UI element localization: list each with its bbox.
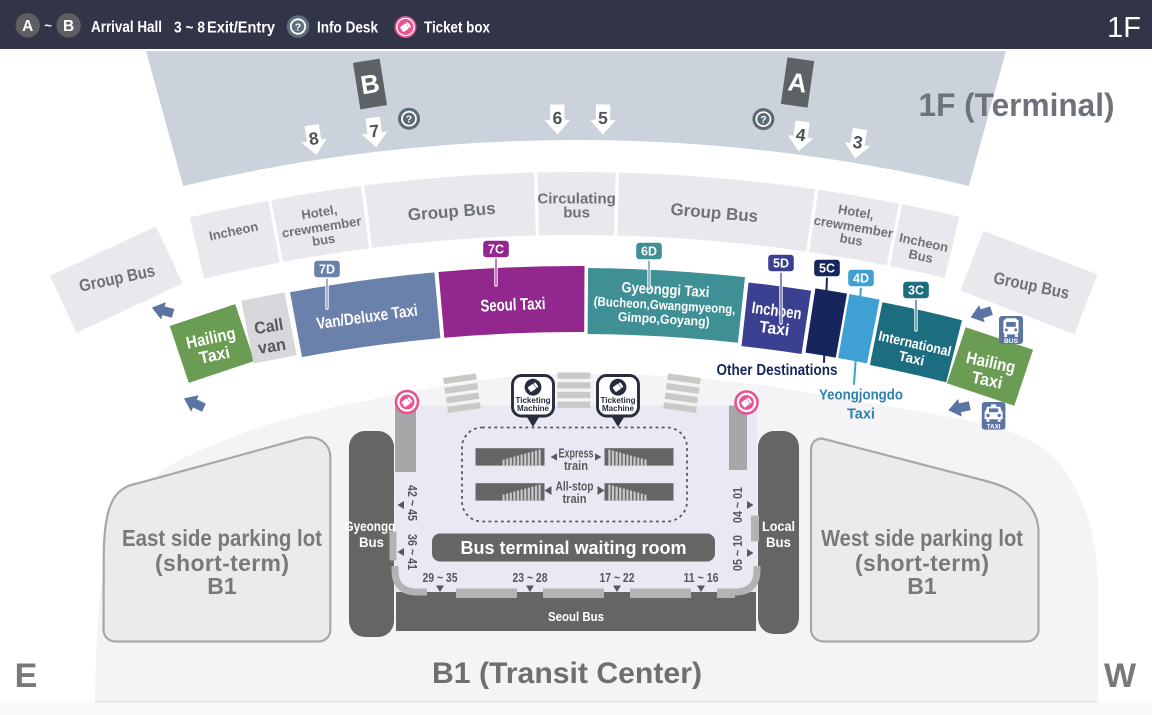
- svg-text:BUS: BUS: [1004, 338, 1019, 345]
- svg-text:11 ~ 16: 11 ~ 16: [684, 570, 719, 585]
- svg-text:29 ~ 35: 29 ~ 35: [423, 570, 458, 585]
- svg-text:train: train: [563, 492, 587, 506]
- svg-text:Yeongjongdo: Yeongjongdo: [819, 387, 903, 404]
- svg-text:5C: 5C: [819, 262, 835, 276]
- svg-text:East side parking lot: East side parking lot: [122, 525, 322, 551]
- svg-text:B: B: [63, 18, 74, 35]
- svg-text:5: 5: [598, 108, 608, 128]
- svg-text:?: ?: [295, 22, 301, 34]
- svg-text:4D: 4D: [853, 272, 869, 286]
- svg-text:Ticket box: Ticket box: [424, 20, 490, 37]
- svg-text:TAXI: TAXI: [987, 423, 1001, 430]
- svg-text:B1 (Transit Center): B1 (Transit Center): [432, 657, 702, 690]
- svg-text:5D: 5D: [773, 257, 789, 271]
- svg-text:Machine: Machine: [602, 404, 635, 413]
- svg-text:7C: 7C: [488, 243, 504, 257]
- svg-text:05 ~ 10: 05 ~ 10: [730, 535, 745, 571]
- svg-text:1F (Terminal): 1F (Terminal): [919, 87, 1115, 123]
- svg-text:42 ~ 45: 42 ~ 45: [405, 485, 420, 521]
- svg-text:~: ~: [44, 18, 52, 33]
- svg-text:A: A: [22, 18, 33, 35]
- svg-text:B1: B1: [907, 573, 937, 599]
- svg-text:6: 6: [552, 108, 562, 128]
- svg-text:Info Desk: Info Desk: [317, 20, 378, 37]
- svg-text:Seoul Bus: Seoul Bus: [548, 609, 604, 624]
- svg-text:?: ?: [760, 114, 766, 126]
- svg-text:Taxi: Taxi: [847, 407, 875, 423]
- svg-text:E: E: [15, 657, 38, 695]
- svg-text:Machine: Machine: [517, 404, 550, 413]
- svg-text:04 ~ 01: 04 ~ 01: [730, 487, 745, 523]
- svg-text:Bus: Bus: [766, 534, 791, 550]
- svg-text:Seoul Taxi: Seoul Taxi: [480, 294, 546, 316]
- svg-text:7D: 7D: [319, 263, 335, 277]
- svg-text:Local: Local: [762, 518, 795, 534]
- svg-text:B1: B1: [207, 573, 237, 599]
- svg-text:Bus terminal waiting room: Bus terminal waiting room: [460, 538, 686, 558]
- svg-text:W: W: [1104, 657, 1137, 695]
- svg-text:6D: 6D: [641, 245, 657, 259]
- svg-text:1F: 1F: [1107, 12, 1141, 44]
- svg-text:23 ~ 28: 23 ~ 28: [513, 570, 548, 585]
- svg-text:17 ~ 22: 17 ~ 22: [600, 570, 635, 585]
- svg-text:3C: 3C: [908, 284, 924, 298]
- svg-text:train: train: [564, 459, 588, 473]
- svg-text:West side parking lot: West side parking lot: [821, 525, 1023, 551]
- svg-text:Bus: Bus: [359, 534, 384, 550]
- svg-text:Exit/Entry: Exit/Entry: [207, 20, 275, 37]
- svg-text:36 ~ 41: 36 ~ 41: [405, 534, 420, 570]
- svg-text:?: ?: [406, 114, 412, 126]
- svg-text:3 ~ 8: 3 ~ 8: [174, 20, 205, 37]
- svg-text:Arrival Hall: Arrival Hall: [91, 19, 162, 36]
- svg-text:Other Destinations: Other Destinations: [717, 362, 838, 379]
- svg-text:bus: bus: [563, 205, 590, 222]
